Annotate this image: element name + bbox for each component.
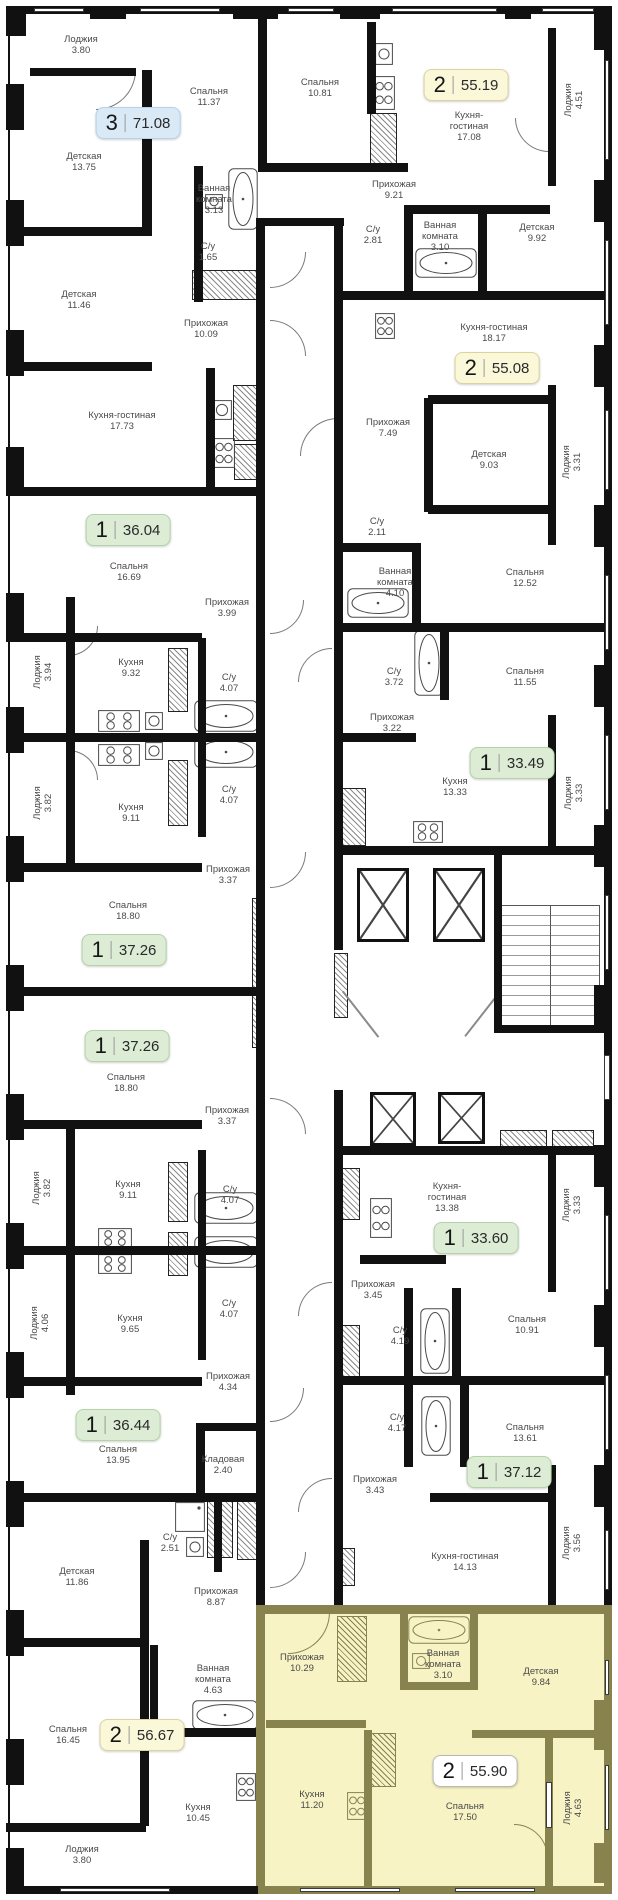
room-label: Спальня16.45 — [28, 1724, 108, 1746]
room-area: 9.32 — [91, 668, 171, 679]
room-label: Лоджия3.82 — [32, 763, 54, 843]
room-name: С/у — [130, 1532, 210, 1543]
wall — [424, 398, 433, 512]
room-area: 17.50 — [425, 1812, 505, 1823]
room-label: С/у2.81 — [333, 224, 413, 246]
room-label: Прихожая10.09 — [166, 318, 246, 340]
room-label: Кухня-гостиная18.17 — [434, 322, 554, 344]
window — [546, 1782, 552, 1828]
room-name: Прихожая — [176, 1586, 256, 1597]
elevator-shaft — [370, 1092, 416, 1146]
room-label: Лоджия4.63 — [562, 1768, 584, 1848]
room-area: 4.51 — [574, 60, 585, 140]
shaft-hatch — [168, 648, 188, 712]
shaft-hatch — [234, 444, 258, 480]
fixture-stove-icon — [236, 1773, 256, 1801]
wall — [340, 543, 414, 552]
room-name: Спальня — [169, 86, 249, 97]
room-label: Кухня9.11 — [91, 802, 171, 824]
room-area: 8.87 — [176, 1597, 256, 1608]
apartment-rooms-count: 1 — [92, 937, 104, 963]
room-area: 18.80 — [88, 911, 168, 922]
room-label: С/у4.17 — [357, 1412, 437, 1434]
door-arc — [270, 252, 306, 288]
wall — [472, 1730, 612, 1738]
room-area: 2.81 — [333, 235, 413, 246]
fixture-stove-icon — [98, 710, 140, 732]
room-label: Кухня9.11 — [88, 1179, 168, 1201]
window — [605, 410, 609, 490]
room-name: С/у — [189, 672, 269, 683]
apartment-rooms-count: 2 — [110, 1722, 122, 1748]
wall — [452, 1288, 461, 1378]
apartment-rooms-count: 1 — [95, 1033, 107, 1059]
room-label: Прихожая3.43 — [335, 1474, 415, 1496]
window — [605, 575, 609, 650]
room-label: Спальня10.91 — [487, 1314, 567, 1336]
wall — [6, 6, 26, 36]
wall — [440, 628, 449, 700]
floor-plan: Лоджия3.80Спальня11.37Детская13.75Ванная… — [0, 0, 618, 1900]
room-label: Прихожая3.22 — [352, 712, 432, 734]
room-name: Кухня — [272, 1789, 352, 1800]
apartment-rooms-count: 3 — [106, 110, 118, 136]
wall — [6, 733, 265, 742]
wall — [6, 987, 265, 996]
room-label: С/у4.19 — [360, 1325, 440, 1347]
room-area: 4.07 — [189, 1309, 269, 1320]
wall — [364, 1730, 372, 1888]
room-label: Спальня18.80 — [86, 1072, 166, 1094]
window — [605, 1215, 609, 1290]
badge-divider — [463, 1229, 464, 1247]
room-name: Прихожая — [187, 597, 267, 608]
room-name: Детская — [39, 289, 119, 300]
wall — [548, 1150, 556, 1292]
wall — [30, 68, 136, 76]
window — [605, 1375, 609, 1450]
room-label: Ванная комната4.63 — [182, 1663, 244, 1697]
wall — [548, 1465, 556, 1607]
room-area: 3.82 — [43, 763, 54, 843]
badge-divider — [114, 1037, 115, 1055]
room-label: Лоджия3.31 — [561, 422, 583, 502]
room-name: Кухня-гостиная — [414, 1181, 480, 1203]
room-name: Лоджия — [41, 34, 121, 45]
fixture-stove-icon — [413, 821, 443, 843]
wall-pier — [594, 1843, 612, 1883]
room-area: 3.94 — [43, 632, 54, 712]
room-name: Спальня — [89, 561, 169, 572]
room-name: С/у — [168, 241, 248, 252]
apartment-badge[interactable]: 133.60 — [434, 1222, 519, 1254]
room-label: Спальня17.50 — [425, 1801, 505, 1823]
wall-pier — [90, 6, 126, 19]
room-name: Лоджия — [31, 1148, 42, 1228]
window — [542, 8, 594, 12]
window — [300, 1888, 400, 1892]
shaft-hatch — [370, 113, 397, 165]
room-name: С/у — [357, 1412, 437, 1423]
wall — [256, 218, 344, 226]
elevator-shaft — [357, 868, 409, 942]
wall — [140, 1540, 149, 1826]
wall — [338, 291, 612, 300]
room-name: Прихожая — [348, 417, 428, 428]
room-label: Кухня-гостиная17.73 — [62, 410, 182, 432]
apartment-badge[interactable]: 137.26 — [82, 934, 167, 966]
room-name: Спальня — [88, 900, 168, 911]
wall — [256, 225, 265, 1607]
door-arc — [96, 70, 136, 110]
room-area: 3.13 — [183, 206, 245, 217]
elevator-shaft — [433, 868, 485, 942]
door-arc — [270, 1098, 306, 1134]
window — [605, 1530, 609, 1590]
room-name: Прихожая — [352, 712, 432, 723]
room-label: Лоджия3.94 — [32, 632, 54, 712]
fixture-sink-icon — [212, 400, 232, 420]
wall-pier — [6, 1481, 24, 1527]
room-label: Лоджия3.56 — [561, 1503, 583, 1583]
room-name: Спальня — [78, 1444, 158, 1455]
room-label: С/у4.07 — [189, 672, 269, 694]
wall-pier — [594, 665, 612, 707]
wall — [430, 1493, 552, 1502]
wall — [404, 205, 550, 214]
fixture-shower-icon — [175, 1502, 205, 1532]
wall — [334, 1090, 343, 1607]
window — [34, 8, 84, 12]
badge-divider — [462, 1762, 463, 1780]
room-name: Прихожая — [262, 1652, 342, 1663]
door-arc — [298, 1282, 332, 1316]
window — [140, 8, 220, 12]
badge-divider — [115, 521, 116, 539]
room-area: 10.91 — [487, 1325, 567, 1336]
wall — [400, 1613, 408, 1685]
room-label: Ванная комната3.10 — [409, 220, 471, 254]
wall-pier — [594, 345, 612, 387]
room-area: 2.40 — [183, 1465, 263, 1476]
room-area: 9.03 — [449, 460, 529, 471]
apartment-badge[interactable]: 136.44 — [76, 1409, 161, 1441]
window — [605, 60, 609, 160]
room-name: Спальня — [425, 1801, 505, 1812]
room-label: Ванная комната4.10 — [364, 566, 426, 600]
room-label: Прихожая8.87 — [176, 1586, 256, 1608]
wall — [548, 28, 556, 186]
room-label: Кухня-гостиная13.38 — [414, 1181, 480, 1215]
room-area: 2.11 — [337, 527, 417, 538]
room-name: Кухня — [91, 802, 171, 813]
fixture-stove-icon — [375, 313, 395, 339]
wall-pier — [594, 1305, 612, 1347]
room-area: 13.38 — [414, 1204, 480, 1215]
room-area: 7.49 — [348, 428, 428, 439]
wall-pier — [6, 593, 24, 639]
room-label: Прихожая3.99 — [187, 597, 267, 619]
wall — [360, 1255, 446, 1264]
room-name: Ванная комната — [409, 220, 471, 242]
room-area: 4.07 — [189, 795, 269, 806]
wall — [214, 1497, 222, 1572]
room-label: С/у3.72 — [354, 666, 434, 688]
room-name: Спальня — [86, 1072, 166, 1083]
wall-pier — [6, 1610, 24, 1656]
fixture-stove-icon — [98, 1254, 132, 1274]
wall — [66, 1250, 75, 1395]
fixture-sink-icon — [145, 712, 163, 730]
badge-divider — [484, 359, 485, 377]
room-area: 16.69 — [89, 572, 169, 583]
wall — [66, 1120, 75, 1250]
wall — [338, 623, 612, 632]
room-name: Прихожая — [187, 1105, 267, 1116]
room-name: Лоджия — [563, 753, 574, 833]
room-area: 4.34 — [188, 1382, 268, 1393]
room-label: Кухня9.65 — [90, 1313, 170, 1335]
room-label: Детская9.84 — [501, 1666, 581, 1688]
apartment-area: 37.26 — [122, 1038, 160, 1055]
door-arc — [270, 1388, 304, 1422]
room-name: Лоджия — [32, 763, 43, 843]
room-name: Лоджия — [32, 632, 43, 712]
room-area: 17.73 — [62, 421, 182, 432]
room-area: 3.31 — [572, 422, 583, 502]
room-label: Детская9.92 — [497, 222, 577, 244]
wall — [6, 1493, 265, 1502]
room-area: 3.10 — [409, 243, 471, 254]
room-area: 9.21 — [354, 190, 434, 201]
door-arc — [270, 852, 306, 888]
door-arc — [270, 1552, 306, 1588]
room-area: 9.84 — [501, 1677, 581, 1688]
apartment-badge[interactable]: 137.26 — [85, 1030, 170, 1062]
room-name: Спальня — [485, 567, 565, 578]
apartment-badge[interactable]: 137.12 — [467, 1456, 552, 1488]
room-area: 4.06 — [40, 1283, 51, 1363]
fixture-stove-icon — [213, 438, 235, 468]
fixture-stove-icon — [98, 1228, 132, 1248]
room-name: Детская — [449, 449, 529, 460]
wall-pier — [6, 1848, 24, 1886]
wall — [400, 1682, 478, 1690]
badge-divider — [453, 76, 454, 94]
apartment-badge[interactable]: 255.19 — [424, 69, 509, 101]
apartment-badge[interactable]: 256.67 — [100, 1719, 185, 1751]
apartment-area: 71.08 — [133, 115, 171, 132]
room-label: Кухня11.20 — [272, 1789, 352, 1811]
wall — [6, 1246, 265, 1255]
room-label: Спальня12.52 — [485, 567, 565, 589]
apartment-area: 33.60 — [471, 1230, 509, 1247]
wall-pier — [6, 707, 24, 753]
window — [455, 1888, 535, 1892]
room-area: 9.11 — [88, 1190, 168, 1201]
apartment-rooms-count: 2 — [434, 72, 446, 98]
room-area: 11.46 — [39, 300, 119, 311]
apartment-badge[interactable]: 255.90 — [433, 1755, 518, 1787]
window — [288, 8, 334, 12]
badge-divider — [105, 1416, 106, 1434]
room-area: 3.33 — [574, 753, 585, 833]
room-name: Спальня — [280, 77, 360, 88]
room-name: С/у — [189, 1298, 269, 1309]
window — [604, 1055, 610, 1100]
room-name: Детская — [37, 1566, 117, 1577]
wall — [428, 395, 550, 404]
room-name: Спальня — [28, 1724, 108, 1735]
room-label: Лоджия3.82 — [31, 1148, 53, 1228]
room-name: С/у — [337, 516, 417, 527]
room-name: Лоджия — [29, 1283, 40, 1363]
room-area: 10.81 — [280, 88, 360, 99]
wall — [6, 1377, 202, 1386]
room-name: Детская — [497, 222, 577, 233]
room-name: Спальня — [485, 1422, 565, 1433]
room-area: 4.10 — [364, 589, 426, 600]
wall — [338, 1146, 612, 1155]
room-label: Прихожая3.45 — [333, 1279, 413, 1301]
window — [605, 240, 609, 325]
wall — [6, 1638, 146, 1647]
fixture-tub-icon — [192, 1700, 258, 1730]
fixture-stove-icon — [370, 1198, 392, 1238]
door-arc — [270, 320, 306, 356]
wall — [142, 70, 152, 232]
room-label: Спальня16.69 — [89, 561, 169, 583]
room-label: Спальня10.81 — [280, 77, 360, 99]
badge-divider — [496, 1463, 497, 1481]
stairs-divider — [550, 906, 551, 1026]
wall-pier — [6, 200, 24, 246]
fixture-stove-icon — [98, 744, 140, 766]
room-label: Прихожая3.37 — [188, 864, 268, 886]
wall — [6, 487, 265, 496]
wall-pier — [340, 6, 380, 19]
room-area: 16.45 — [28, 1735, 108, 1746]
wall — [258, 163, 408, 172]
wall-pier — [594, 1465, 612, 1507]
wall-pier — [594, 505, 612, 547]
wall-pier — [6, 965, 24, 1011]
wall — [258, 10, 267, 166]
room-name: С/у — [360, 1325, 440, 1336]
room-name: Кухня — [88, 1179, 168, 1190]
room-label: Прихожая4.34 — [188, 1371, 268, 1393]
room-area: 3.33 — [572, 1165, 583, 1245]
room-area: 4.07 — [189, 683, 269, 694]
room-area: 9.11 — [91, 813, 171, 824]
wall-pier — [6, 84, 24, 130]
apartment-area: 36.44 — [113, 1417, 151, 1434]
room-name: С/у — [189, 784, 269, 795]
wall — [548, 385, 556, 545]
wall-pier — [594, 8, 612, 50]
apartment-badge[interactable]: 371.08 — [96, 107, 181, 139]
shaft-hatch — [168, 760, 188, 826]
apartment-area: 37.12 — [504, 1464, 542, 1481]
wall — [6, 863, 202, 872]
room-name: С/у — [354, 666, 434, 677]
wall — [6, 1120, 202, 1129]
room-area: 14.13 — [405, 1562, 525, 1573]
room-area: 12.52 — [485, 578, 565, 589]
room-name: Кухня — [91, 657, 171, 668]
wall — [66, 737, 75, 865]
badge-divider — [125, 114, 126, 132]
wall — [494, 1025, 606, 1033]
room-name: Лоджия — [42, 1844, 122, 1855]
room-label: Детская11.46 — [39, 289, 119, 311]
room-name: Прихожая — [335, 1474, 415, 1485]
window — [605, 895, 609, 970]
window — [392, 8, 497, 12]
apartment-badge[interactable]: 133.49 — [470, 747, 555, 779]
room-name: Кухня-гостиная — [434, 322, 554, 333]
stairwell — [500, 905, 600, 1027]
shaft-hatch — [168, 1162, 188, 1222]
apartment-badge[interactable]: 255.08 — [455, 352, 540, 384]
room-label: Лоджия3.80 — [42, 1844, 122, 1866]
room-area: 3.80 — [41, 45, 121, 56]
apartment-rooms-count: 1 — [86, 1412, 98, 1438]
room-label: С/у2.51 — [130, 1532, 210, 1554]
wall-pier — [6, 447, 24, 493]
room-area: 3.72 — [354, 677, 434, 688]
room-label: Лоджия3.80 — [41, 34, 121, 56]
room-label: Детская13.75 — [44, 151, 124, 173]
room-name: Кухня-гостиная — [436, 110, 502, 132]
room-area: 4.19 — [360, 1336, 440, 1347]
room-name: Лоджия — [563, 60, 574, 140]
room-label: С/у2.11 — [337, 516, 417, 538]
room-label: Спальня11.37 — [169, 86, 249, 108]
apartment-badge[interactable]: 136.04 — [86, 514, 171, 546]
shaft-hatch — [334, 953, 348, 1018]
room-name: Лоджия — [561, 422, 572, 502]
room-name: Лоджия — [561, 1503, 572, 1583]
window — [60, 1888, 170, 1892]
wall-pier — [594, 985, 612, 1027]
wall-pier — [594, 1145, 612, 1187]
window — [605, 1660, 609, 1695]
wall-pier — [594, 180, 612, 222]
room-area: 10.45 — [158, 1813, 238, 1824]
apartment-area: 33.49 — [507, 755, 545, 772]
apartment-area: 55.90 — [470, 1763, 508, 1780]
room-area: 10.09 — [166, 329, 246, 340]
door-arc — [270, 600, 304, 634]
room-area: 11.86 — [37, 1577, 117, 1588]
room-name: Лоджия — [562, 1768, 573, 1848]
room-name: Прихожая — [188, 864, 268, 875]
room-label: Спальня18.80 — [88, 900, 168, 922]
room-name: Ванная комната — [182, 1663, 244, 1685]
room-name: Прихожая — [354, 179, 434, 190]
apartment-area: 55.19 — [461, 77, 499, 94]
room-name: Кухня — [90, 1313, 170, 1324]
wall — [428, 505, 550, 514]
room-name: Ванная комната — [412, 1648, 474, 1670]
room-name: Ванная комната — [364, 566, 426, 588]
door-arc — [298, 1478, 332, 1512]
apartment-rooms-count: 1 — [480, 750, 492, 776]
room-label: Спальня11.55 — [485, 666, 565, 688]
room-area: 17.08 — [436, 133, 502, 144]
room-label: Спальня13.61 — [485, 1422, 565, 1444]
